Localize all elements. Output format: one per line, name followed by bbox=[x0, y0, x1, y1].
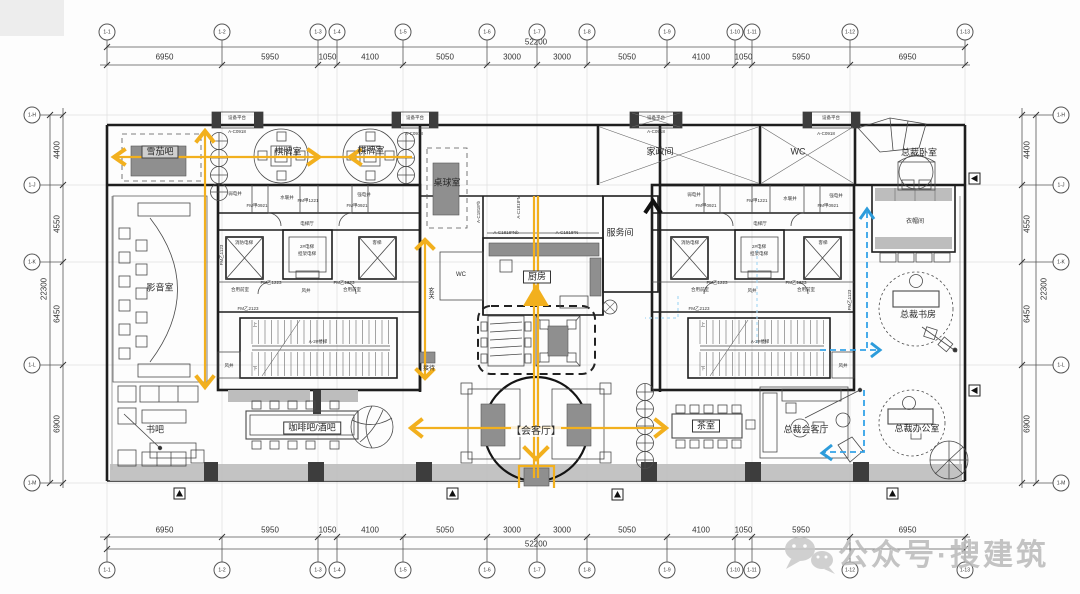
grid-axis-bubble: 1-5 bbox=[395, 562, 412, 579]
grid-axis-bubble: 1-3 bbox=[310, 24, 327, 41]
tiny-annotation: A-C1818*b bbox=[477, 201, 482, 223]
tiny-annotation: A-C1818*Nb bbox=[493, 231, 518, 236]
tiny-annotation: FM甲1221 bbox=[746, 199, 767, 204]
room-label-foyer: 玄关 bbox=[427, 287, 433, 299]
dimension-value: 4100 bbox=[692, 53, 710, 62]
grid-axis-bubble: 1-M bbox=[1053, 475, 1070, 492]
tiny-annotation: 水暖井 bbox=[783, 197, 797, 202]
grid-axis-bubble: 1-11 bbox=[744, 562, 761, 579]
grid-axis-bubble: 1-7 bbox=[529, 562, 546, 579]
tiny-annotation: A-2#楼梯 bbox=[309, 340, 328, 345]
grid-axis-bubble: 1-8 bbox=[579, 562, 596, 579]
tiny-annotation: 合用前室 bbox=[691, 288, 709, 293]
dim-total-height-left: 22300 bbox=[40, 278, 49, 300]
tiny-annotation: FM甲0921 bbox=[246, 204, 267, 209]
grid-axis-bubble: 1-5 bbox=[395, 24, 412, 41]
dimension-value: 4100 bbox=[361, 53, 379, 62]
tiny-annotation: A-C1818*M bbox=[517, 195, 522, 218]
room-label-president-bedroom: 总裁卧室 bbox=[901, 149, 937, 158]
dimension-value: 6450 bbox=[53, 305, 62, 323]
dimension-value: 4100 bbox=[361, 526, 379, 535]
room-label-president-office: 总裁办公室 bbox=[894, 425, 939, 434]
tiny-annotation: FM乙1123 bbox=[848, 290, 853, 311]
watermark-text: 公众号·搜建筑 bbox=[838, 534, 1052, 570]
tiny-annotation: A-2#楼梯 bbox=[751, 340, 770, 345]
grid-axis-bubble: 1-J bbox=[1053, 177, 1070, 194]
scan-artifact bbox=[0, 0, 64, 36]
tiny-annotation: 设备平台 bbox=[647, 116, 665, 121]
tiny-annotation: 电梯厅 bbox=[300, 222, 314, 227]
grid-axis-bubble: 1-L bbox=[1053, 357, 1070, 374]
dimension-value: 5050 bbox=[618, 53, 636, 62]
dimension-value: 3000 bbox=[553, 526, 571, 535]
tiny-annotation: 设备平台 bbox=[822, 116, 840, 121]
dimension-value: 4400 bbox=[1023, 141, 1032, 159]
dimension-value: 4100 bbox=[692, 526, 710, 535]
room-label-president-study: 总裁书房 bbox=[900, 311, 936, 320]
tiny-annotation: 上 bbox=[253, 323, 258, 328]
tiny-annotation: FM甲0921 bbox=[346, 204, 367, 209]
tiny-annotation: FM乙2123 bbox=[237, 307, 258, 312]
dimension-value: 1050 bbox=[735, 53, 753, 62]
grid-axis-bubble: 1-4 bbox=[329, 562, 346, 579]
dimension-value: 5950 bbox=[792, 526, 810, 535]
tiny-annotation: A-C0918 bbox=[647, 130, 665, 135]
grid-axis-bubble: 1-2 bbox=[214, 562, 231, 579]
grid-axis-bubble: 1-M bbox=[24, 475, 41, 492]
tiny-annotation: 弱电井 bbox=[228, 192, 242, 197]
dim-total-height-right: 22300 bbox=[1040, 278, 1049, 300]
room-label-chess-2: 棋牌室 bbox=[357, 147, 384, 156]
tiny-annotation: 合用前室 bbox=[343, 288, 361, 293]
tiny-annotation: 客梯 bbox=[373, 241, 382, 246]
dim-total-width-bottom: 52200 bbox=[525, 540, 547, 549]
tiny-annotation: 风井 bbox=[839, 364, 848, 369]
tiny-annotation: 设备平台 bbox=[406, 116, 424, 121]
tiny-annotation: 弱电井 bbox=[687, 193, 701, 198]
tiny-annotation: 2#电梯 bbox=[752, 245, 766, 250]
floor-plan-page: 雪茄吧 棋牌室 棋牌室 桌球室 家政间 WC 总裁卧室 衣帽间 影音室 厨房 服… bbox=[0, 0, 1080, 594]
tiny-annotation: FM乙2123 bbox=[688, 307, 709, 312]
tiny-annotation: 客梯 bbox=[819, 241, 828, 246]
grid-axis-bubble: 1-9 bbox=[659, 562, 676, 579]
room-label-kitchen: 厨房 bbox=[523, 271, 551, 284]
dimension-value: 5050 bbox=[618, 526, 636, 535]
dimension-value: 6950 bbox=[899, 53, 917, 62]
grid-axis-bubble: 1-10 bbox=[727, 24, 744, 41]
tiny-annotation: FM乙1123 bbox=[220, 245, 225, 266]
dimension-value: 5950 bbox=[261, 526, 279, 535]
room-label-chess-1: 棋牌室 bbox=[274, 148, 301, 157]
grid-axis-bubble: 1-12 bbox=[842, 24, 859, 41]
grid-axis-bubble: 1-3 bbox=[310, 562, 327, 579]
tiny-annotation: 风井 bbox=[225, 364, 234, 369]
room-label-living-room: 【会客厅】 bbox=[511, 427, 561, 437]
grid-axis-bubble: 1-13 bbox=[957, 24, 974, 41]
grid-axis-bubble: 1-4 bbox=[329, 24, 346, 41]
dimension-value: 5050 bbox=[436, 526, 454, 535]
tiny-annotation: 合用前室 bbox=[797, 288, 815, 293]
tiny-annotation: A-C0918 bbox=[405, 132, 423, 137]
grid-axis-bubble: 1-1 bbox=[99, 562, 116, 579]
dimension-value: 6900 bbox=[53, 415, 62, 433]
dimension-value: 6950 bbox=[156, 53, 174, 62]
tiny-annotation: 设备平台 bbox=[228, 116, 246, 121]
dimension-value: 4550 bbox=[53, 215, 62, 233]
tiny-annotation: A-C0918 bbox=[228, 130, 246, 135]
grid-axis-bubble: 1-K bbox=[1053, 254, 1070, 271]
dimension-value: 5950 bbox=[261, 53, 279, 62]
dimension-value: 3000 bbox=[503, 53, 521, 62]
room-label-wc: WC bbox=[791, 148, 806, 157]
tiny-annotation: FM乙1223 bbox=[260, 281, 281, 286]
room-label-cigar-bar: 雪茄吧 bbox=[141, 146, 178, 159]
dimension-value: 3000 bbox=[503, 526, 521, 535]
grid-axis-bubble: 1-7 bbox=[529, 24, 546, 41]
dimension-value: 6900 bbox=[1023, 415, 1032, 433]
tiny-annotation: 上 bbox=[701, 323, 706, 328]
room-label-service: 服务间 bbox=[606, 229, 633, 238]
dimension-value: 3000 bbox=[553, 53, 571, 62]
tiny-annotation: FM甲1221 bbox=[297, 199, 318, 204]
tiny-annotation: 风井 bbox=[748, 289, 757, 294]
dimension-value: 4400 bbox=[53, 141, 62, 159]
grid-axis-bubble: 1-2 bbox=[214, 24, 231, 41]
grid-axis-bubble: 1-L bbox=[24, 357, 41, 374]
grid-axis-bubble: 1-J bbox=[24, 177, 41, 194]
grid-axis-bubble: 1-K bbox=[24, 254, 41, 271]
tiny-annotation: 强电井 bbox=[357, 193, 371, 198]
tiny-annotation: 消防电梯 bbox=[235, 241, 253, 246]
tiny-annotation: 强电井 bbox=[829, 194, 843, 199]
room-label-cloakroom: 衣帽间 bbox=[906, 219, 924, 225]
tiny-annotation: 合用前室 bbox=[231, 288, 249, 293]
grid-axis-bubble: 1-8 bbox=[579, 24, 596, 41]
grid-axis-bubble: 1-10 bbox=[727, 562, 744, 579]
tiny-annotation: FM乙1223 bbox=[706, 281, 727, 286]
tiny-annotation: 电梯厅 bbox=[753, 222, 767, 227]
dimension-value: 5050 bbox=[436, 53, 454, 62]
tiny-annotation: 水暖井 bbox=[280, 196, 294, 201]
tiny-annotation: 下 bbox=[253, 367, 258, 372]
room-label-book-bar: 书吧 bbox=[146, 426, 164, 435]
grid-axis-bubble: 1-H bbox=[24, 107, 41, 124]
grid-axis-bubble: 1-6 bbox=[479, 562, 496, 579]
tiny-annotation: 担架电梯 bbox=[750, 252, 768, 257]
tiny-annotation: FM乙1223 bbox=[785, 281, 806, 286]
tiny-annotation: 下 bbox=[701, 367, 706, 372]
wechat-icon bbox=[785, 537, 835, 574]
dimension-value: 6450 bbox=[1023, 305, 1032, 323]
tiny-annotation: 2#电梯 bbox=[300, 245, 314, 250]
tiny-annotation: FM乙1223 bbox=[333, 281, 354, 286]
grid-axis-bubble: 1-9 bbox=[659, 24, 676, 41]
room-label-reception: 接待 bbox=[423, 366, 435, 372]
grid-axis-bubble: 1-H bbox=[1053, 107, 1070, 124]
tiny-annotation: FM甲0921 bbox=[817, 204, 838, 209]
tiny-annotation: 风井 bbox=[302, 289, 311, 294]
grid-axis-bubble: 1-11 bbox=[744, 24, 761, 41]
room-label-billiards: 桌球室 bbox=[433, 179, 460, 188]
dimension-value: 5950 bbox=[792, 53, 810, 62]
room-label-av-room: 影音室 bbox=[146, 284, 173, 293]
dimension-value: 1050 bbox=[319, 53, 337, 62]
dimension-value: 1050 bbox=[735, 526, 753, 535]
section-markers bbox=[174, 173, 980, 500]
grid-axis-bubble: 1-1 bbox=[99, 24, 116, 41]
tiny-annotation: A-C1818*N bbox=[556, 231, 579, 236]
tiny-annotation: 消防电梯 bbox=[681, 241, 699, 246]
floor-plan-drawing bbox=[0, 0, 1080, 594]
tiny-annotation: A-C0918 bbox=[817, 132, 835, 137]
room-label-housekeeping: 家政间 bbox=[646, 148, 673, 157]
grid-axis-bubble: 1-6 bbox=[479, 24, 496, 41]
tiny-annotation: FM甲0921 bbox=[695, 204, 716, 209]
dimension-value: 4550 bbox=[1023, 215, 1032, 233]
tiny-annotation: 担架电梯 bbox=[298, 252, 316, 257]
room-label-coffee-bar: 咖啡吧/酒吧 bbox=[283, 422, 341, 435]
room-label-tea-room: 茶室 bbox=[692, 420, 720, 433]
room-label-president-lounge: 总裁会客厅 bbox=[783, 426, 828, 435]
dimension-value: 1050 bbox=[319, 526, 337, 535]
room-label-wc-small: WC bbox=[456, 272, 466, 278]
dimension-value: 6950 bbox=[156, 526, 174, 535]
